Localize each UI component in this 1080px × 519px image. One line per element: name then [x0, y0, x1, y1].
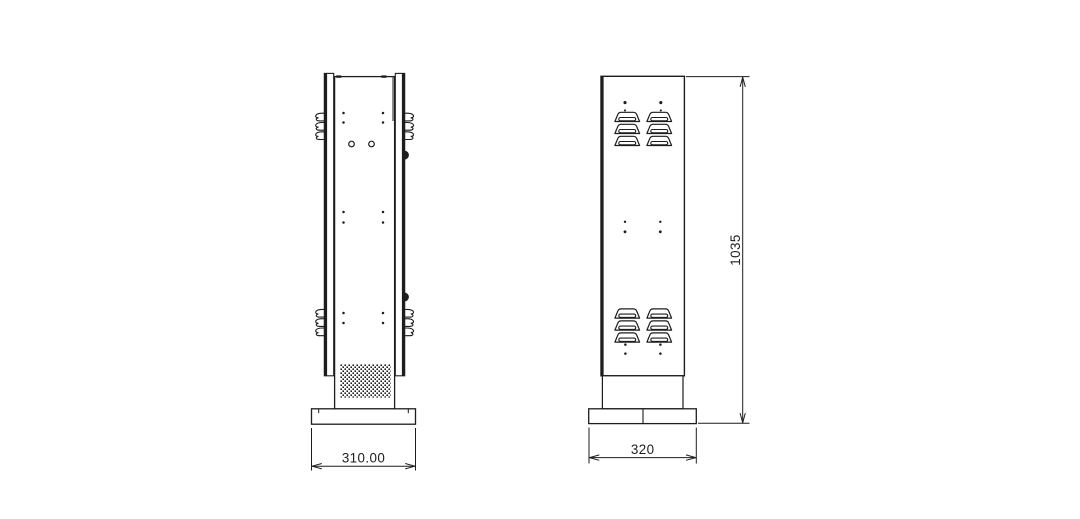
vent-louvre [615, 333, 640, 342]
hole-dot [382, 322, 385, 325]
hole-dot [659, 343, 662, 346]
hole-dot [624, 352, 627, 355]
front-width-label: 320 [631, 442, 655, 457]
hole-dot [342, 221, 345, 224]
hole-dot [342, 121, 345, 124]
front-width-dimension: 320 [589, 428, 696, 464]
hole-dot [382, 211, 385, 214]
hole-dot [382, 121, 385, 124]
side-width-dimension: 310.00 [312, 428, 416, 471]
vent-louvre [615, 309, 640, 318]
hole-dot [624, 343, 627, 346]
hole-dot [624, 109, 626, 111]
hole-dot [659, 352, 662, 355]
front-height-dimension: 1035 [686, 77, 750, 424]
hole-dot [342, 112, 345, 115]
front-plinth [602, 376, 683, 409]
hole-dot [660, 109, 662, 111]
vent-louvre [615, 112, 640, 121]
top-edge-notch [336, 75, 341, 77]
hinge-bump [404, 151, 409, 160]
hole-dot [342, 312, 345, 315]
hole-dot [382, 112, 385, 115]
side-base-plate [312, 409, 416, 424]
side-view: 310.00 [312, 73, 416, 470]
hole-dot [624, 221, 626, 223]
hinge-bump [404, 293, 409, 302]
vent-louvre [615, 124, 640, 133]
technical-drawing: 310.00 [0, 0, 1080, 519]
vent-louvre [647, 124, 672, 133]
front-base-plate [589, 409, 697, 424]
vent-louvre [647, 333, 672, 342]
hole-dot [624, 230, 627, 233]
hole-dot [382, 221, 385, 224]
vent-louvre [647, 136, 672, 145]
hole-dot [659, 230, 662, 233]
cable-hole [369, 141, 375, 147]
right-mounting-rail [395, 73, 404, 375]
hole-dot [623, 101, 626, 104]
hole-dot [342, 211, 345, 214]
left-mounting-rail [324, 73, 333, 375]
vent-louvre [647, 112, 672, 121]
vent-louvre [615, 321, 640, 330]
front-height-label: 1035 [728, 234, 743, 265]
hole-dot [382, 312, 385, 315]
drawing-canvas: 310.00 [0, 0, 1080, 519]
front-view: 320 1035 [589, 76, 750, 463]
hole-dot [659, 221, 661, 223]
speaker-grille [340, 364, 391, 397]
side-width-label: 310.00 [342, 451, 385, 466]
side-view-body [335, 75, 395, 409]
vent-louvre [647, 309, 672, 318]
hole-dot [342, 322, 345, 325]
cable-hole [349, 141, 355, 147]
hole-dot [659, 101, 662, 104]
top-edge-notch [381, 75, 386, 77]
vent-louvre [615, 136, 640, 145]
vent-louvre [647, 321, 672, 330]
